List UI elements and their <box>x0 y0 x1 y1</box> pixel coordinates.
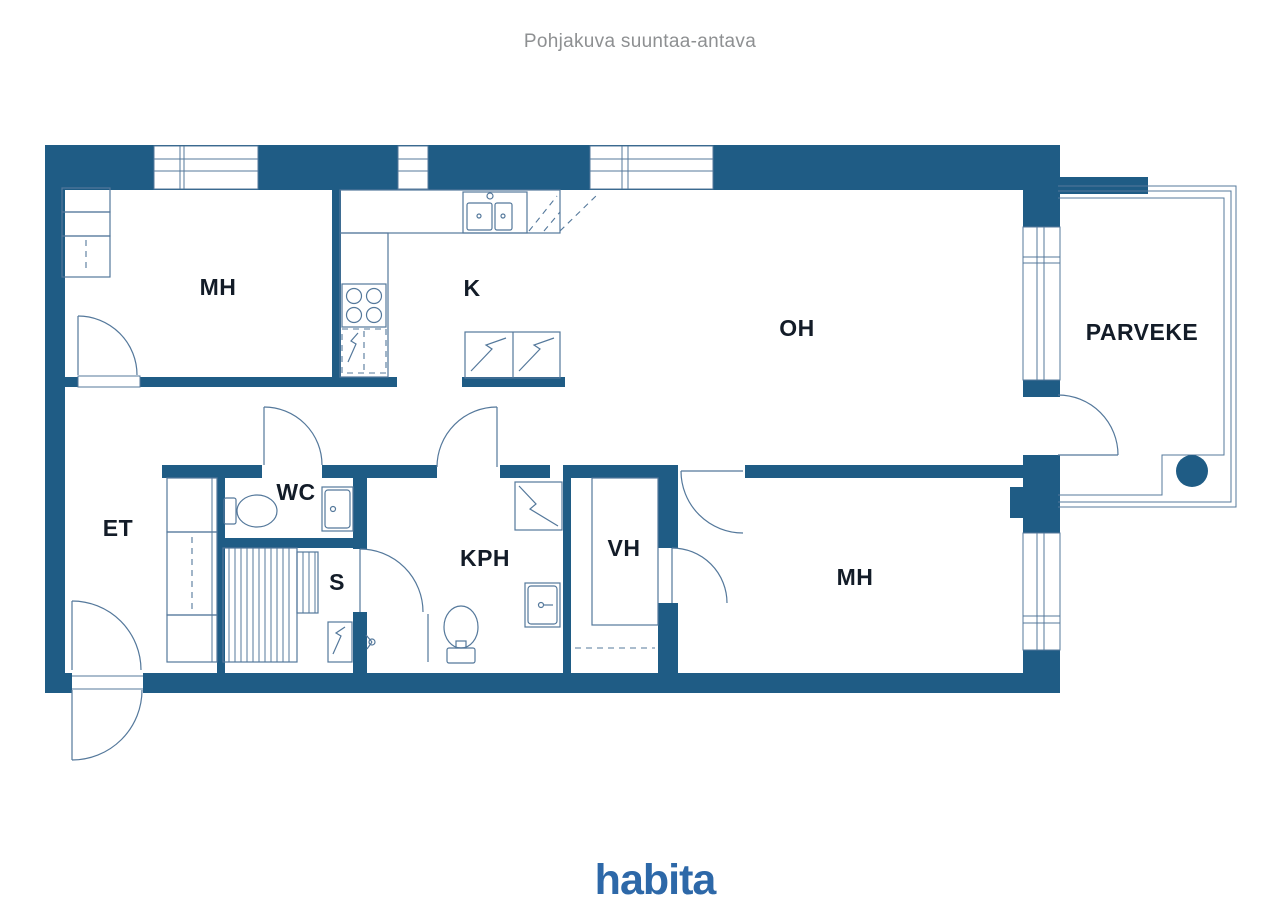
wall-sauna-bath-lower <box>353 612 367 673</box>
door-arc-balcony <box>1058 395 1118 455</box>
floor-plan-page: Pohjakuva suuntaa-antava <box>0 0 1280 906</box>
wall-livingroom-notch <box>1010 487 1023 518</box>
room-label-bedroom-1: MH <box>200 274 237 300</box>
fridge-freezer-icon <box>465 332 560 378</box>
stove-icon <box>342 284 386 327</box>
room-label-kitchen: K <box>463 275 480 301</box>
wall-bath-closet <box>563 478 571 673</box>
door-arc-sauna <box>360 549 423 612</box>
window-bedroom2 <box>1023 533 1060 650</box>
doorway-bathroom <box>437 465 500 478</box>
kitchen-worktop-dashed <box>529 194 598 231</box>
window-kitchen-living <box>590 146 713 189</box>
washbasin-icon <box>322 487 353 531</box>
wall-sauna-bath-upper <box>353 465 367 549</box>
dishwasher-icon <box>342 329 386 373</box>
door-arc-entrance-inner <box>72 601 141 670</box>
doorway-wc <box>262 465 322 478</box>
floor-plan-drawing: MH K OH PARVEKE ET WC S KPH VH MH <box>0 0 1280 906</box>
doorway-closet-bedroom2 <box>658 548 678 603</box>
room-label-bedroom-2: MH <box>837 564 874 590</box>
wall-corridor-2 <box>322 465 437 478</box>
wall-corridor-5 <box>745 465 1023 478</box>
exterior-walls <box>45 145 1148 693</box>
wall-corridor-3 <box>500 465 550 478</box>
shower-faucet-icon <box>366 635 375 649</box>
windows <box>154 146 1060 650</box>
toilet-icon <box>224 495 277 527</box>
bathroom-sink-icon <box>525 583 560 627</box>
room-label-walk-in-closet: VH <box>608 535 641 561</box>
kitchen-sink-icon <box>463 192 527 233</box>
room-label-sauna: S <box>329 569 345 595</box>
doorway-bedroom1 <box>78 376 140 387</box>
window-kitchen-small <box>398 146 428 189</box>
wardrobe-hall-icon <box>167 478 217 662</box>
door-arc-bedroom2 <box>681 471 743 533</box>
closet-shelf-icon <box>575 478 658 648</box>
window-living-room <box>1023 227 1060 380</box>
balcony-outline <box>1058 186 1236 507</box>
doorway-balcony <box>1023 397 1060 455</box>
door-arc-entrance-outer <box>72 690 142 760</box>
door-arc-closet-bedroom2 <box>672 548 727 603</box>
washing-machine-icon <box>515 482 562 530</box>
window-bedroom1 <box>154 146 258 189</box>
wall-closet-bedroom2-lower <box>658 603 678 673</box>
door-arc-bathroom <box>437 407 497 467</box>
room-label-bathroom: KPH <box>460 545 510 571</box>
wall-corridor-4 <box>563 465 678 478</box>
wall-recess <box>550 465 563 478</box>
wall-bedroom1-bottom <box>140 377 397 387</box>
wardrobe-bedroom1-icon <box>62 188 110 277</box>
bathroom-toilet-icon <box>444 606 478 663</box>
room-label-living-room: OH <box>779 315 815 341</box>
door-arc-bedroom1 <box>78 316 137 375</box>
habita-logo: habita <box>595 856 716 905</box>
sauna-bench-icon <box>223 548 318 662</box>
wall-wc-sauna <box>217 538 367 548</box>
door-arc-wc <box>264 407 322 465</box>
room-label-balcony: PARVEKE <box>1086 319 1199 345</box>
sauna-fixtures <box>223 548 352 662</box>
bathroom-fixtures <box>366 482 562 663</box>
wall-closet-wc <box>217 465 225 673</box>
wall-closet-bedroom2-upper <box>658 478 678 548</box>
room-label-toilet-room: WC <box>276 479 315 505</box>
balcony-drain-icon <box>1176 455 1208 487</box>
sauna-heater-icon <box>328 622 352 662</box>
interior-walls <box>45 190 1023 673</box>
wall-bedroom1-bottom-left <box>45 377 78 387</box>
room-label-entrance-hall: ET <box>103 515 133 541</box>
wall-bottom <box>45 673 1060 693</box>
wall-corridor-1 <box>162 465 262 478</box>
